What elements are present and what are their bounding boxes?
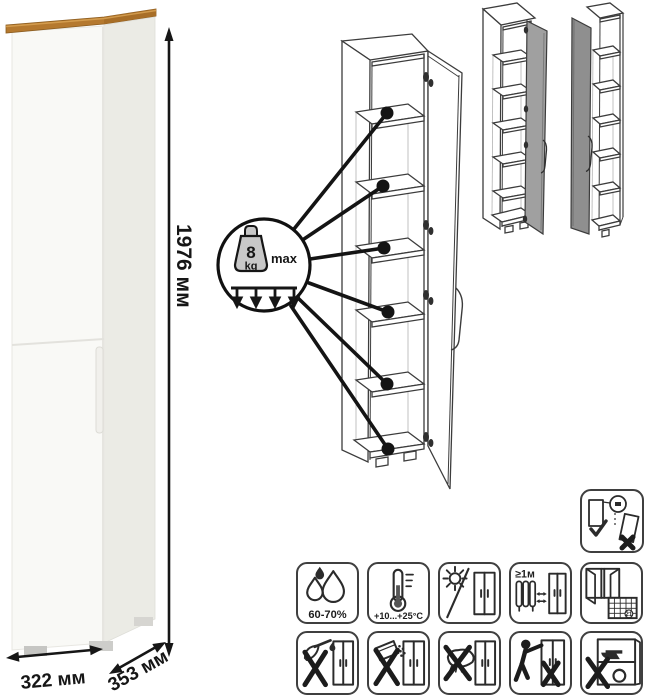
kettlebell-glyph [613, 670, 625, 682]
temperature-label: +10...+25°C [374, 611, 423, 621]
do-not-drag-icon [509, 631, 572, 695]
wardrobe-glyph [549, 574, 565, 614]
temperature-range-icon: +10...+25°C [367, 562, 430, 624]
cabinet-front-face [12, 26, 104, 650]
wardrobe-glyph [475, 641, 495, 684]
variant-a-door [525, 21, 547, 234]
product-photo [6, 9, 156, 656]
heat-distance-label: ≥1м [515, 569, 535, 581]
load-value: 8 [246, 243, 255, 262]
shelf-callout-dots [377, 107, 395, 456]
height-dimension-label: 1976 мм [172, 224, 195, 308]
checkmark [591, 521, 606, 535]
water-drop-large [323, 571, 344, 602]
distance-arrows [536, 592, 547, 603]
water-drop-small [315, 567, 324, 580]
width-arrowhead-left [6, 652, 19, 662]
humidity-range-icon: 60-70% [296, 562, 359, 624]
no-abrasive-powders-icon [367, 631, 430, 695]
humidity-label: 60-70% [308, 609, 346, 621]
wall-anchor-required-icon [580, 489, 644, 553]
cabinet-side-face [104, 17, 155, 643]
variant-b-shelves [592, 46, 620, 230]
wardrobe-glyph [474, 573, 494, 615]
depth-dimension-label: 353 мм [105, 646, 172, 696]
water-drop-medium [307, 578, 322, 600]
open-door [428, 51, 462, 489]
open-cabinet-diagram [342, 34, 462, 489]
variant-b-door [571, 18, 592, 234]
load-unit: kg [245, 261, 258, 273]
door-hinged-left-variant [571, 3, 623, 237]
wardrobe-glyph [333, 641, 353, 684]
load-qualifier: max [271, 251, 298, 266]
no-direct-sunlight-icon [438, 562, 501, 624]
wardrobe-glyph [403, 641, 424, 684]
person-glyph [516, 640, 542, 680]
no-sharp-objects-liquids-icon [296, 631, 359, 695]
calendar-glyph: 21 [609, 598, 637, 618]
no-abrasive-sponges-icon [438, 631, 501, 695]
bracket-glyph [615, 502, 621, 506]
width-dimension-label: 322 мм [20, 667, 87, 694]
anvil-glyph [601, 650, 622, 659]
distance-from-heat-source-icon: ≥1м [509, 562, 572, 624]
height-arrowhead-top [165, 27, 174, 41]
load-capacity-badge: 8 kg max [218, 219, 310, 311]
door-hinged-right-variant [483, 3, 547, 234]
ventilate-room-icon: 21 [580, 562, 643, 624]
radiator-glyph [516, 581, 535, 610]
anchored-cabinet-glyph [589, 500, 603, 526]
door-handle-groove [96, 347, 103, 433]
diagram-canvas: 1976 мм 322 мм 353 мм [0, 0, 648, 700]
calendar-day-label: 21 [625, 611, 632, 618]
do-not-overload-icon [580, 631, 643, 695]
